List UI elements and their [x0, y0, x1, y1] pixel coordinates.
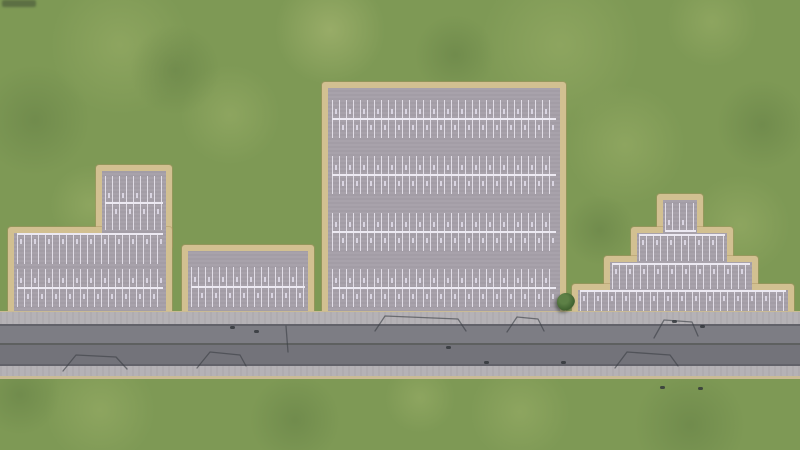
road-speck: [698, 387, 703, 390]
street-light-pole: [615, 352, 678, 368]
street-light-pole: [63, 355, 127, 371]
game-viewport: [0, 0, 800, 450]
road-speck: [660, 386, 665, 389]
road-speck: [446, 346, 451, 349]
road-speck: [254, 330, 259, 333]
street-light-pole: [375, 316, 466, 331]
street-light-pole: [286, 326, 288, 352]
tree-icon: [557, 293, 575, 311]
road-speck: [230, 326, 235, 329]
props-layer: [0, 0, 800, 450]
corner-smudge: [2, 0, 36, 7]
road-speck: [672, 320, 677, 323]
street-lights-group: [0, 0, 800, 450]
street-light-pole: [507, 317, 544, 332]
road-speck: [484, 361, 489, 364]
road-speck: [561, 361, 566, 364]
road-speck: [700, 325, 705, 328]
street-light-pole: [197, 352, 246, 368]
